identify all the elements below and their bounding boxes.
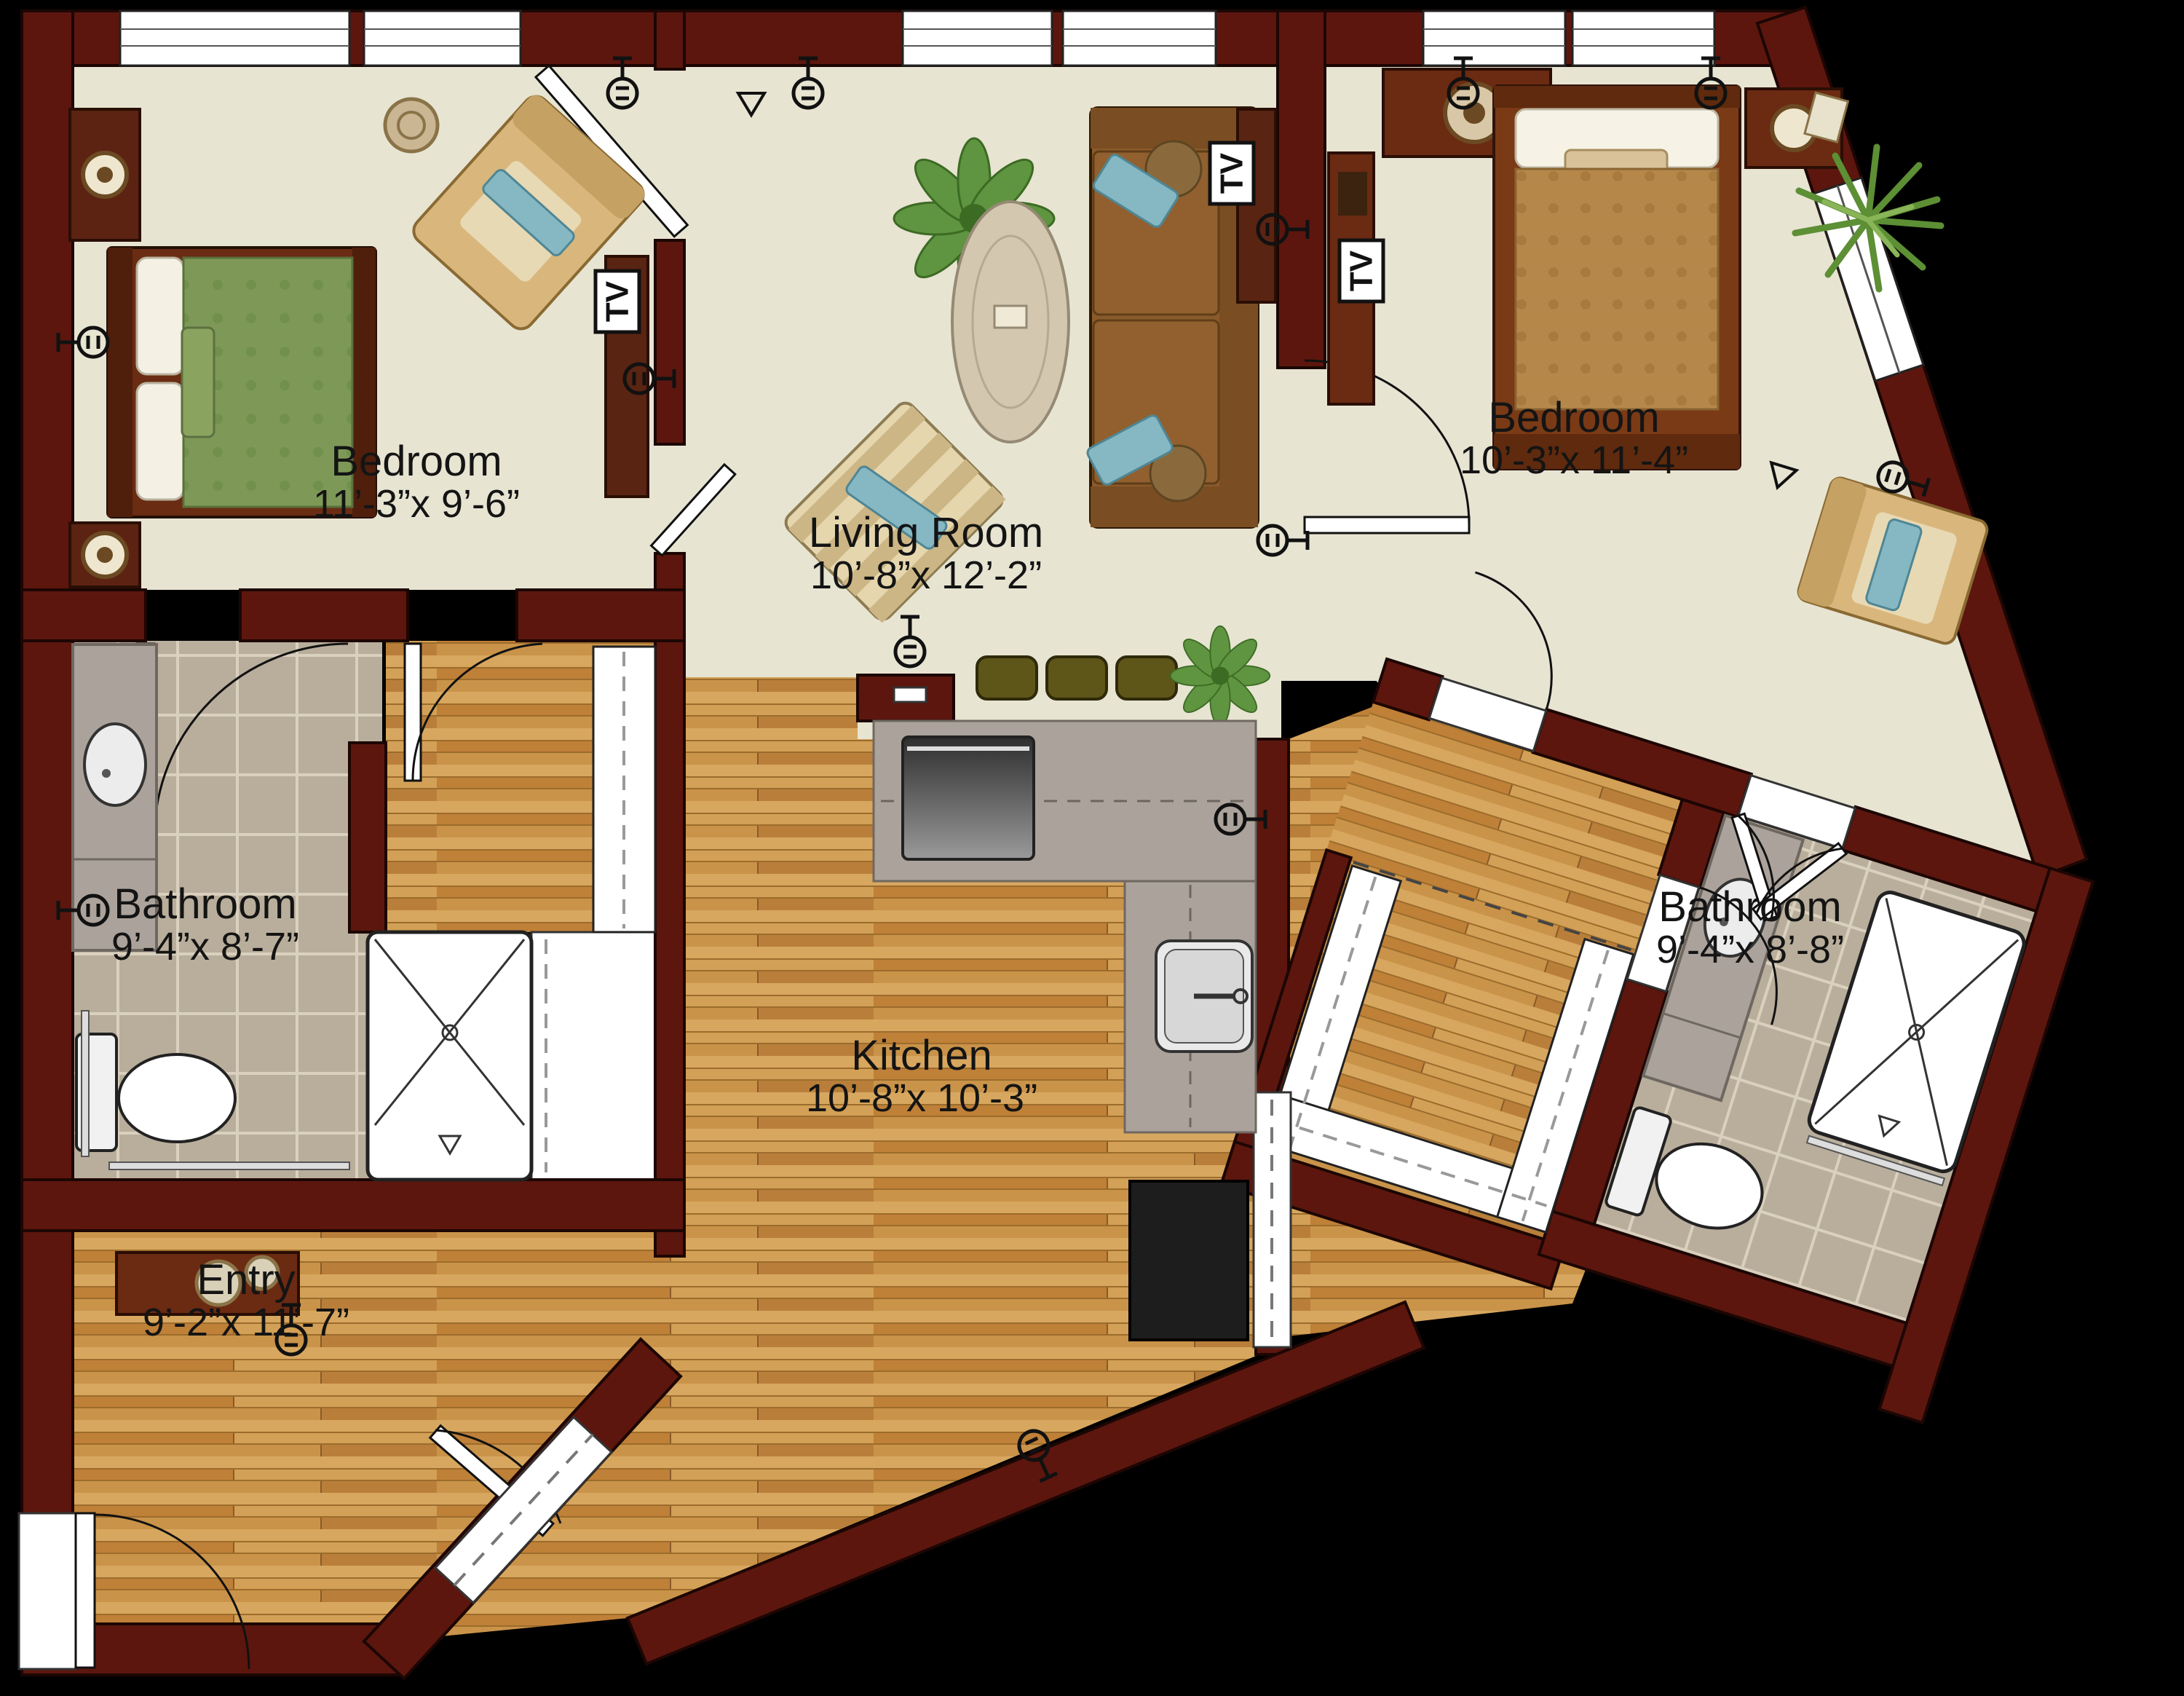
room-label-bathroom-1: Bathroom 9’-4”x 8’-7” [111,883,299,967]
wall-left [22,11,73,1675]
room-dimensions: 9’-4”x 8’-7” [111,927,299,967]
room-name: Bedroom [313,440,520,484]
quilt [1516,169,1718,409]
cabinet-shelf [1338,172,1367,216]
vanity-sink [84,724,146,805]
wall-bathroom1-stub [349,743,386,932]
room-name: Bedroom [1460,396,1688,441]
room-label-entry: Entry 9’-2”x 11’-7” [143,1258,349,1343]
tv-text: TV [600,280,636,322]
bar-stool [977,657,1037,699]
room-label-bathroom-2: Bathroom 9’-4”x 8’-8” [1656,886,1844,970]
table-decor [994,306,1026,328]
shower [368,932,531,1180]
pillow [137,383,183,500]
pass-through [894,687,926,702]
room-name: Bathroom [1656,886,1844,930]
room-dimensions: 10’-8”x 12’-2” [809,556,1043,596]
wall-bedroom1-right-b [655,240,684,444]
bolster-pillow [182,328,214,437]
entry-door-leaf [76,1513,95,1668]
tv-text: TV [1214,152,1250,194]
room-name: Bathroom [111,883,299,927]
potted-plant [1171,626,1270,725]
room-label-bedroom-1: Bedroom 11’-3”x 9’-6” [313,440,520,524]
wall-bathroom1-bottom [22,1180,684,1231]
room-label-living-room: Living Room 10’-8”x 12’-2” [809,511,1043,596]
window [1572,11,1714,66]
sink-drain [102,769,111,778]
window [1063,11,1216,66]
toilet-bowl [119,1054,235,1142]
room-name: Entry [143,1258,349,1303]
wall-living-bedroom2 [1278,11,1325,368]
wall-bedroom1-bottom-c [517,590,684,641]
refrigerator [1130,1181,1248,1340]
pillow [137,258,183,374]
wall-bedroom1-bottom-a [22,590,146,641]
range [903,737,1034,859]
bar-stool [1117,657,1176,699]
grab-bar [82,1011,89,1156]
bedroom2-door-leaf [1305,517,1469,533]
room-dimensions: 10’-8”x 10’-3” [806,1078,1037,1119]
room-dimensions: 11’-3”x 9’-6” [313,484,520,524]
window [903,11,1052,66]
basket [385,99,438,151]
room-dimensions: 9’-4”x 8’-8” [1656,930,1844,970]
wall-bedroom1-bottom-b [240,590,408,641]
floor-plan: TV TV [0,0,2184,1696]
tv-text: TV [1344,250,1380,291]
wall-bedroom1-right-c [655,553,684,1256]
closet1-door-leaf [405,644,421,781]
room-dimensions: 9’-2”x 11’-7” [143,1303,349,1343]
wall-bedroom1-right-a [655,11,684,69]
window [364,11,521,66]
room-label-kitchen: Kitchen 10’-8”x 10’-3” [806,1034,1037,1119]
room-name: Living Room [809,511,1043,556]
room-name: Kitchen [806,1034,1037,1078]
window [1423,11,1565,66]
room-dimensions: 10’-3”x 11’-4” [1460,441,1688,481]
bar-stool [1047,657,1107,699]
floor-plan-svg: TV TV [0,0,2184,1696]
door-opening-entry [19,1513,76,1669]
lamp-finial [97,167,113,183]
grab-bar [109,1162,349,1170]
room-label-bedroom-2: Bedroom 10’-3”x 11’-4” [1460,396,1688,481]
window [120,11,349,66]
lamp-finial [97,547,113,563]
